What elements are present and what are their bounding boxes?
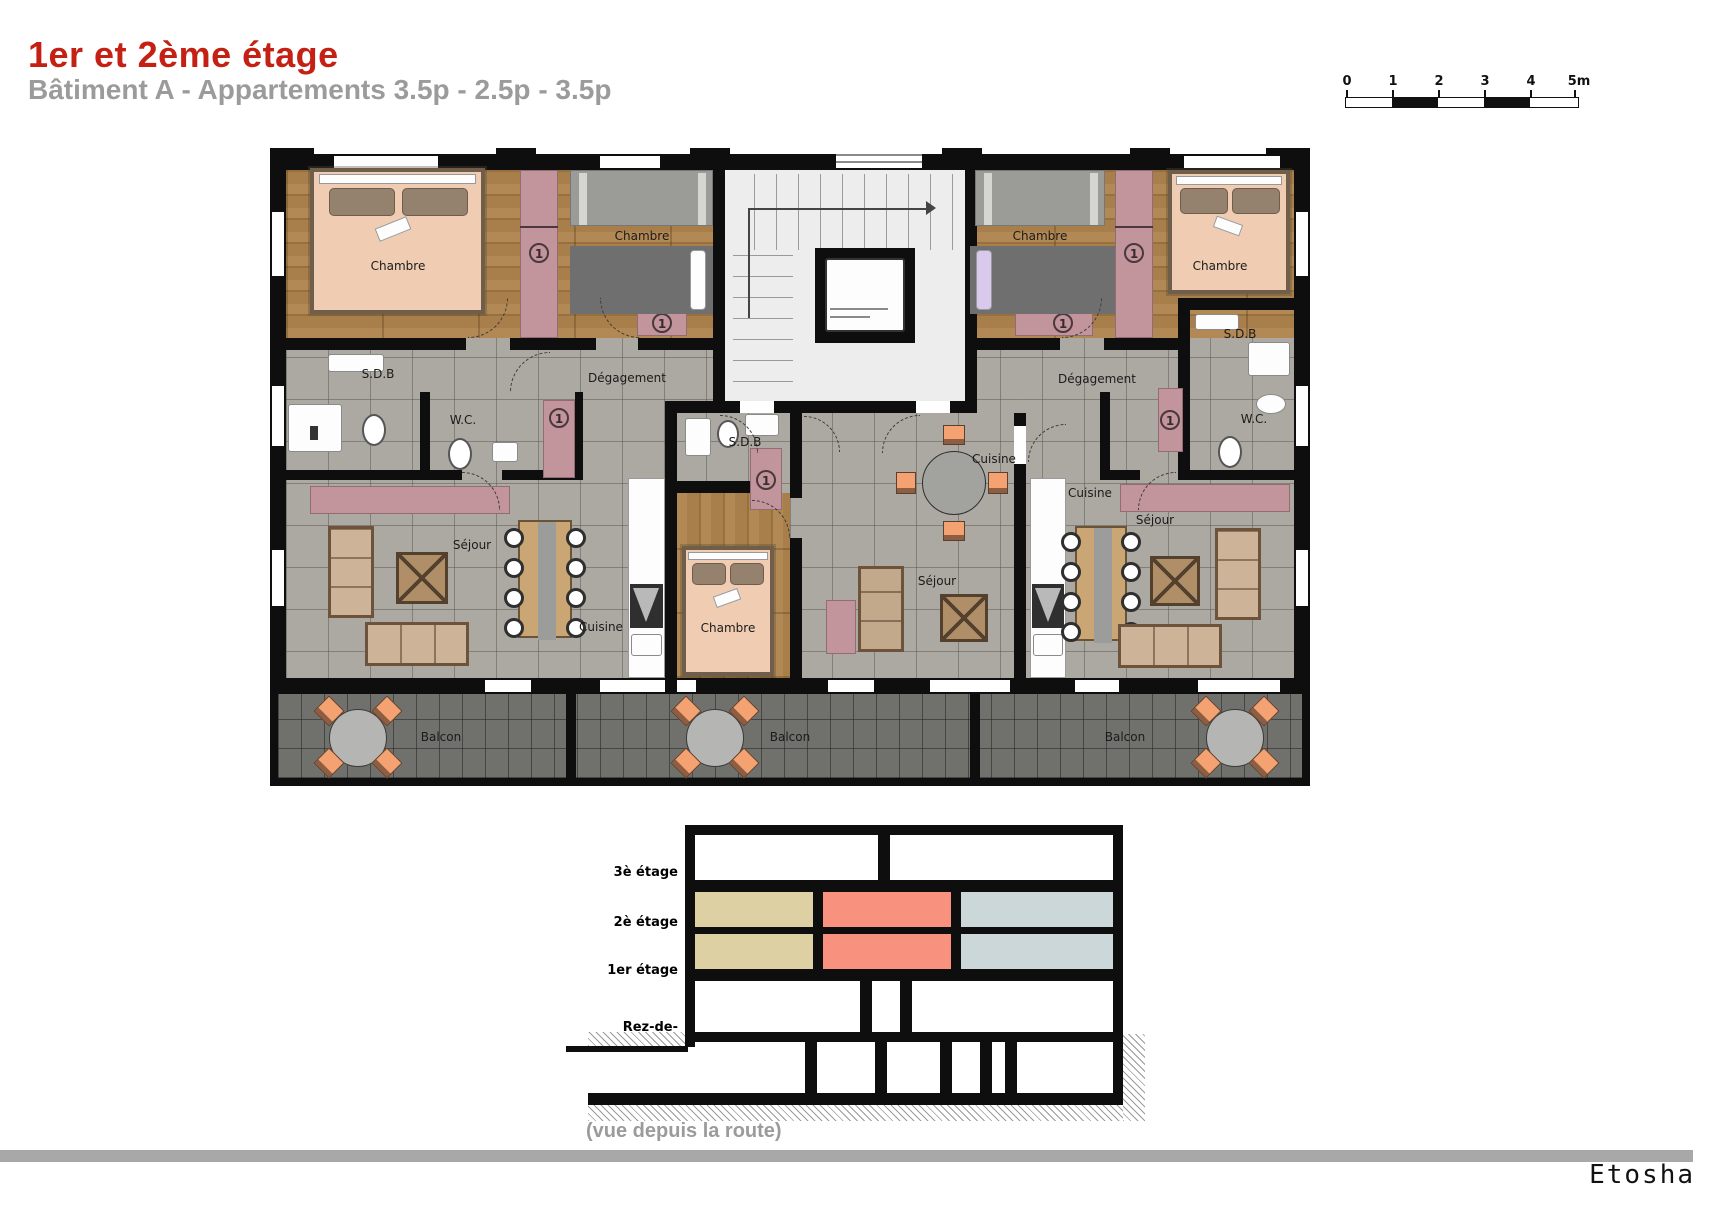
elevator-cab — [825, 258, 905, 332]
pillow — [730, 563, 764, 585]
chair — [1061, 592, 1081, 612]
ground-hatch — [588, 1105, 1138, 1121]
footer-rule — [0, 1150, 1693, 1162]
dining-table — [518, 520, 572, 638]
scale-tick — [1392, 90, 1394, 97]
sofa — [328, 526, 374, 618]
scale-tick — [1484, 90, 1486, 97]
coffee-table — [1150, 556, 1200, 606]
sofa — [858, 566, 904, 652]
stair-treads — [733, 174, 957, 250]
wall — [665, 413, 677, 694]
room-label-degagement: Dégagement — [1058, 372, 1136, 386]
apartment-block-left — [695, 892, 813, 927]
window — [600, 680, 696, 692]
section-wall — [805, 1042, 817, 1093]
wall — [977, 338, 1060, 350]
chair — [896, 472, 916, 494]
window — [1296, 550, 1308, 606]
stair-arrow-head — [926, 201, 936, 215]
scale-segment — [1346, 98, 1392, 107]
wardrobe-stripe — [984, 173, 992, 225]
ground-hatch — [588, 1032, 685, 1046]
wall — [790, 538, 802, 694]
room-label-cuisine: Cuisine — [1068, 486, 1112, 500]
wall — [286, 470, 462, 480]
closet-number: 1 — [529, 243, 549, 263]
chair — [1061, 562, 1081, 582]
scale-segment — [1530, 98, 1578, 107]
elevator-door-line — [830, 308, 888, 310]
room-label-sejour: Séjour — [918, 574, 956, 588]
room-label-chambre: Chambre — [1193, 259, 1248, 273]
shower — [1248, 342, 1290, 376]
section-slab — [685, 969, 1123, 981]
closet-number: 1 — [756, 470, 776, 490]
closet-number: 1 — [549, 408, 569, 428]
closet-divider — [1115, 226, 1153, 228]
section-wall — [860, 981, 872, 1032]
ground-line — [566, 1046, 688, 1052]
pillow — [976, 250, 992, 310]
apartment-block-left — [695, 934, 813, 969]
chair — [566, 558, 586, 578]
room-label-degagement: Dégagement — [588, 371, 666, 385]
window — [930, 680, 1010, 692]
floor-label: 3è étage — [560, 865, 678, 880]
room-label-cuisine: Cuisine — [972, 452, 1016, 466]
scale-segment — [1438, 98, 1484, 107]
section-ground-slab — [588, 1093, 1123, 1105]
scale-tick — [1346, 90, 1348, 97]
scale-tick — [1438, 90, 1440, 97]
chair — [1121, 532, 1141, 552]
scale-tick-label: 5m — [1568, 74, 1591, 89]
pillow — [1180, 188, 1228, 214]
chair — [1121, 592, 1141, 612]
chair — [943, 425, 965, 445]
toilet — [362, 414, 386, 446]
chair — [1061, 532, 1081, 552]
wall — [1180, 470, 1294, 480]
room-label-balcon: Balcon — [421, 730, 461, 744]
window — [600, 156, 660, 168]
scale-tick-label: 3 — [1480, 74, 1489, 89]
kitchen-sink — [631, 634, 662, 656]
wall-pier — [270, 148, 314, 170]
wall-pier — [690, 148, 730, 170]
scale-segment — [1392, 98, 1438, 107]
chair — [504, 618, 524, 638]
window — [272, 550, 284, 606]
room-label-cuisine: Cuisine — [579, 620, 623, 634]
double-bed — [1168, 170, 1290, 294]
elevator-door-line — [830, 316, 870, 318]
chair — [566, 588, 586, 608]
section-wall — [685, 825, 695, 1047]
section-caption: (vue depuis la route) — [586, 1120, 782, 1143]
window — [272, 212, 284, 276]
wall — [510, 338, 596, 350]
closet-number: 1 — [1160, 410, 1180, 430]
door-opening — [916, 401, 950, 413]
scale-tick-label: 1 — [1388, 74, 1397, 89]
room-label-sdb: S.D.B — [362, 367, 395, 381]
building-section: 3è étage 2è étage 1er étage Rez-de-chaus… — [560, 820, 1180, 1160]
apartment-block-right — [961, 934, 1113, 969]
section-wall — [980, 1042, 992, 1093]
section-wall — [940, 1042, 952, 1093]
room-label-chambre: Chambre — [371, 259, 426, 273]
duvet-fold — [375, 216, 412, 242]
window — [334, 156, 438, 168]
balcony-wall — [1302, 694, 1310, 782]
headboard — [688, 552, 768, 560]
stair-arrow-line — [748, 208, 928, 210]
toilet — [1218, 436, 1242, 468]
floor-plan: 1 1 1 1 1 1 1 — [270, 148, 1310, 788]
wardrobe-stripe — [579, 173, 587, 225]
section-wall — [900, 981, 912, 1032]
duvet-fold — [713, 588, 742, 608]
pillow — [402, 188, 468, 216]
tv-cabinet — [826, 600, 856, 654]
wall — [1100, 470, 1140, 480]
chair — [566, 528, 586, 548]
window — [1184, 156, 1280, 168]
pillow — [1232, 188, 1280, 214]
wardrobe-stripe — [1090, 173, 1098, 225]
scale-tick-label: 2 — [1434, 74, 1443, 89]
section-wall — [951, 934, 961, 969]
wardrobe-stripe — [698, 173, 706, 225]
floor-label: 1er étage — [560, 963, 678, 978]
brand-logo: Etosha — [1545, 1160, 1695, 1190]
door-opening — [740, 401, 774, 413]
room-label-sdb: S.D.B — [1224, 327, 1257, 341]
balcony-door — [1075, 680, 1119, 692]
wall — [1104, 338, 1178, 350]
shower-fixture — [310, 426, 318, 440]
wall — [286, 338, 466, 350]
window-frame-line — [836, 154, 922, 156]
section-wall — [813, 934, 823, 969]
closet-number: 1 — [1124, 243, 1144, 263]
scale-segment — [1484, 98, 1530, 107]
section-wall — [1113, 825, 1123, 1093]
wall — [1190, 298, 1294, 310]
room-label-chambre: Chambre — [1013, 229, 1068, 243]
section-slab — [685, 927, 1123, 934]
table-runner — [538, 522, 556, 640]
wall-pier — [942, 148, 982, 170]
pillow — [690, 250, 706, 310]
chair — [988, 472, 1008, 494]
stair-treads — [733, 250, 793, 402]
chair — [504, 528, 524, 548]
washbasin — [1256, 394, 1286, 414]
window-frame-line — [836, 161, 922, 163]
section-slab — [685, 880, 1123, 892]
section-wall — [1005, 1042, 1017, 1093]
window — [272, 386, 284, 446]
wall — [790, 413, 802, 498]
page-subtitle: Bâtiment A - Appartements 3.5p - 2.5p - … — [28, 74, 611, 106]
section-wall — [951, 892, 961, 927]
room-label-sdb: S.D.B — [729, 435, 762, 449]
toilet — [448, 438, 472, 470]
window — [1296, 212, 1308, 276]
stair-bay-window — [836, 148, 922, 168]
chair — [1061, 622, 1081, 642]
floor-label: 2è étage — [560, 915, 678, 930]
ground-hatch — [1123, 1034, 1145, 1121]
table-runner — [1094, 528, 1112, 643]
section-wall — [813, 892, 823, 927]
coffee-table — [396, 552, 448, 604]
chair — [943, 521, 965, 541]
stove-fan — [633, 588, 659, 622]
section-wall — [875, 1042, 887, 1093]
balcony-wall — [270, 694, 278, 782]
page: 1er et 2ème étage Bâtiment A - Apparteme… — [0, 0, 1722, 1214]
pillow — [692, 563, 726, 585]
headboard — [319, 174, 476, 184]
wall — [638, 338, 713, 350]
duvet-fold — [1213, 216, 1243, 237]
room-label-balcon: Balcon — [770, 730, 810, 744]
double-bed — [682, 546, 774, 676]
room-label-chambre: Chambre — [615, 229, 670, 243]
room-label-sejour: Séjour — [453, 538, 491, 552]
chair — [504, 588, 524, 608]
scale-bar-rule — [1345, 97, 1579, 108]
chair — [504, 558, 524, 578]
apartment-block-middle — [823, 892, 951, 927]
room-label-chambre: Chambre — [701, 621, 756, 635]
kitchen-sink — [1033, 634, 1063, 656]
wall — [420, 392, 430, 480]
coffee-table — [940, 594, 988, 642]
scale-tick-label: 4 — [1526, 74, 1535, 89]
scale-tick — [1574, 90, 1576, 97]
wardrobe — [570, 170, 713, 226]
stove — [1032, 584, 1064, 628]
scale-tick-label: 0 — [1342, 74, 1351, 89]
wall — [677, 481, 753, 493]
single-bed — [570, 246, 713, 314]
balcony-door — [828, 680, 874, 692]
section-wall — [685, 825, 1123, 835]
wall-pier — [1130, 148, 1170, 170]
apartment-block-right — [961, 892, 1113, 927]
wardrobe — [975, 170, 1105, 226]
room-label-sejour: Séjour — [1136, 513, 1174, 527]
balcony-wall — [270, 778, 1310, 786]
closet-divider — [520, 226, 558, 228]
room-label-balcon: Balcon — [1105, 730, 1145, 744]
stove-fan — [1035, 588, 1061, 622]
chair — [1121, 562, 1141, 582]
bath-cabinet — [685, 418, 711, 456]
stove — [630, 584, 663, 628]
window — [1296, 386, 1308, 446]
pillow — [329, 188, 395, 216]
headboard — [1176, 176, 1282, 185]
closet-number: 1 — [652, 313, 672, 333]
section-wall — [878, 835, 890, 880]
wall-stairwell — [713, 170, 725, 413]
wall-pier — [496, 148, 536, 170]
wall — [1100, 392, 1110, 480]
scale-bar: 0 1 2 3 4 5m — [1343, 74, 1585, 110]
balcony-door — [485, 680, 531, 692]
balcony-divider — [970, 694, 980, 778]
double-bed — [310, 168, 485, 314]
balcony-divider — [566, 694, 576, 778]
sofa — [1118, 624, 1222, 668]
window — [1198, 680, 1280, 692]
section-slab — [685, 1032, 1123, 1042]
sofa — [365, 622, 469, 666]
apartment-block-middle — [823, 934, 951, 969]
washbasin — [492, 442, 518, 462]
stair-arrow-line — [748, 208, 750, 318]
scale-tick — [1530, 90, 1532, 97]
wall — [575, 392, 583, 480]
room-label-wc: W.C. — [450, 413, 477, 427]
page-title: 1er et 2ème étage — [28, 34, 339, 76]
sofa — [1215, 528, 1261, 620]
room-label-wc: W.C. — [1241, 412, 1268, 426]
